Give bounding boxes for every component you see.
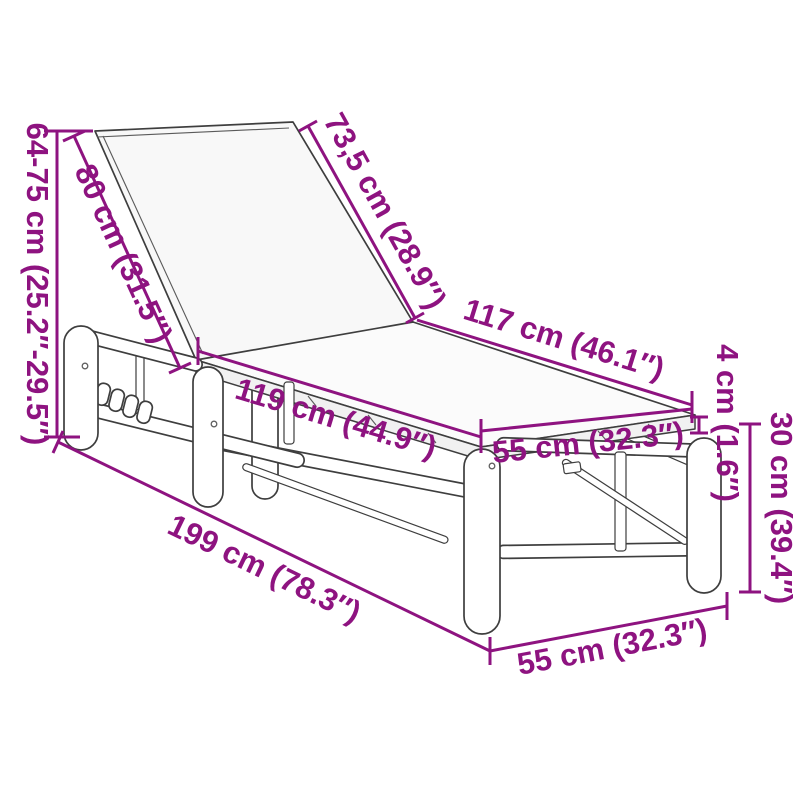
dimension-diagram: 64-75 cm (25.2″-29.5″) 80 cm (31.5″) 73,… [0,0,800,800]
dimension-width-bottom: 55 cm (32.3″) [490,592,727,682]
foot-lower-cross-rail [497,543,702,559]
screw [211,421,217,427]
sun-lounger-dimension-drawing: 64-75 cm (25.2″-29.5″) 80 cm (31.5″) 73,… [0,0,800,800]
dimension-label: 199 cm (78.3″) [163,507,367,630]
head-front-leg [64,326,98,450]
seat-clip [563,462,581,474]
dimension-seat-height: 30 cm (39.4″) [739,412,799,604]
dimension-label: 55 cm (32.3″) [514,611,709,681]
dimension-label: 30 cm (39.4″) [764,412,799,604]
screw [82,363,88,369]
foot-front-leg [464,449,500,634]
dimension-label: 64-75 cm (25.2″-29.5″) [20,123,55,446]
mid-front-leg [193,367,223,507]
